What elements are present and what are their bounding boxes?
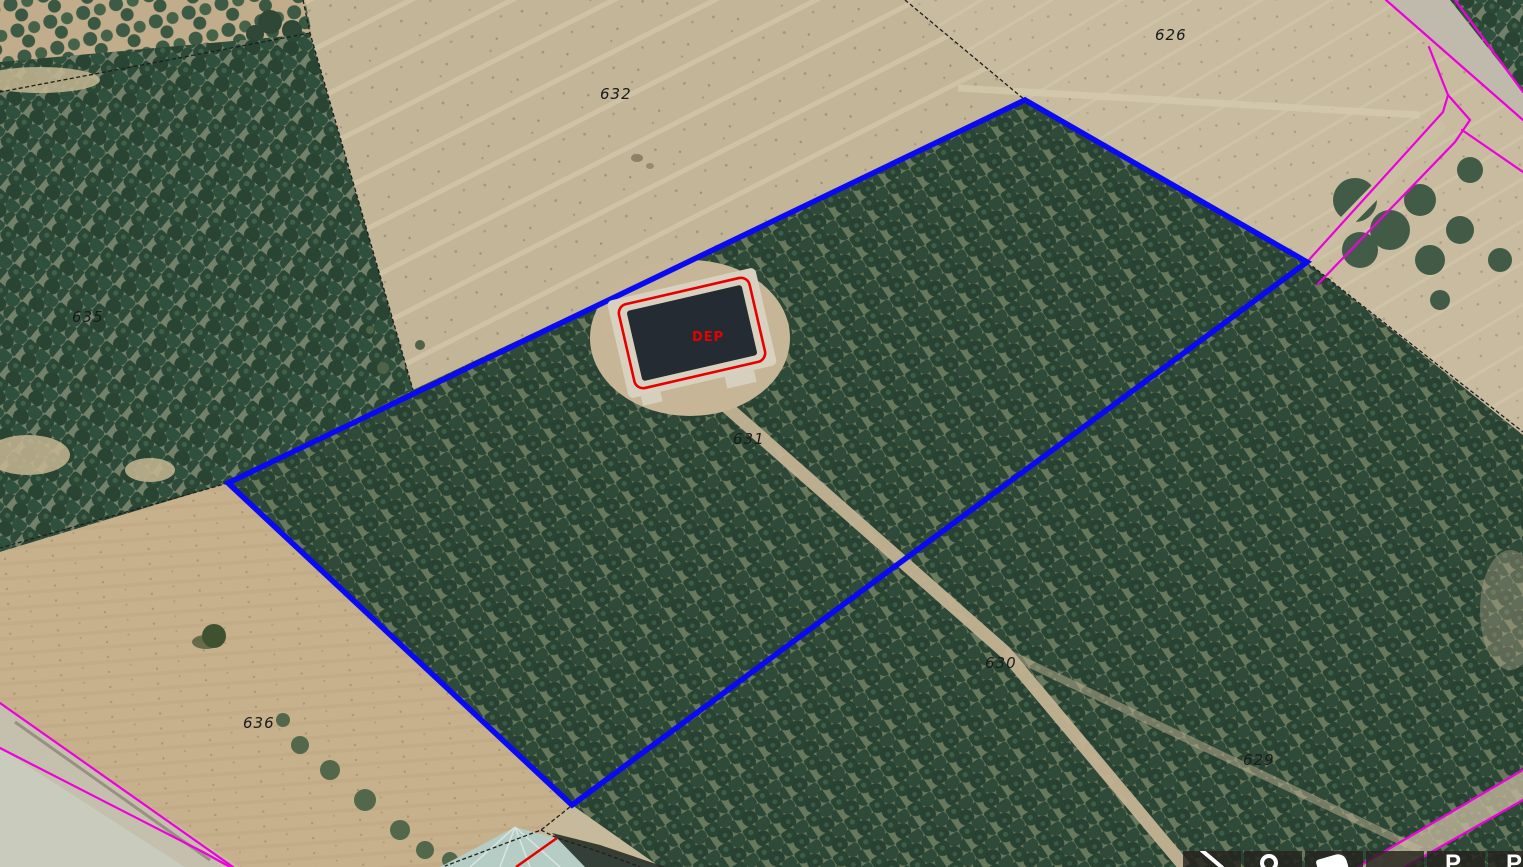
gis-viewer: DEP 626 632 635 636 631 630 629 P P [0,0,1523,867]
map-toolbar: P P [1183,851,1523,867]
letter-p-icon: P [1506,852,1522,867]
parcel-label-635: 635 [72,308,104,326]
parcel-label-626: 626 [1155,26,1187,44]
toolbar-button-pdf[interactable]: P [1488,851,1523,867]
parcel-label-632: 632 [600,85,632,103]
deposit-label: DEP [692,330,724,345]
parcel-label-630: 630 [985,654,1017,672]
diagonal-arrow-icon [1199,851,1225,867]
toolbar-button-pan-arrow[interactable] [1183,851,1241,867]
letter-p-icon: P [1445,852,1461,867]
parcel-label-636: 636 [243,714,275,732]
hand-icon [1315,852,1348,867]
aerial-map[interactable]: DEP 626 632 635 636 631 630 629 [0,0,1523,867]
toolbar-button-print[interactable]: P [1427,851,1485,867]
toolbar-button-hand[interactable] [1305,851,1363,867]
magnifier-icon [1260,854,1278,867]
parcel-label-631: 631 [733,430,765,448]
toolbar-button-zoom[interactable] [1244,851,1302,867]
parcel-label-629: 629 [1243,751,1275,769]
toolbar-button-blank[interactable] [1366,851,1424,867]
